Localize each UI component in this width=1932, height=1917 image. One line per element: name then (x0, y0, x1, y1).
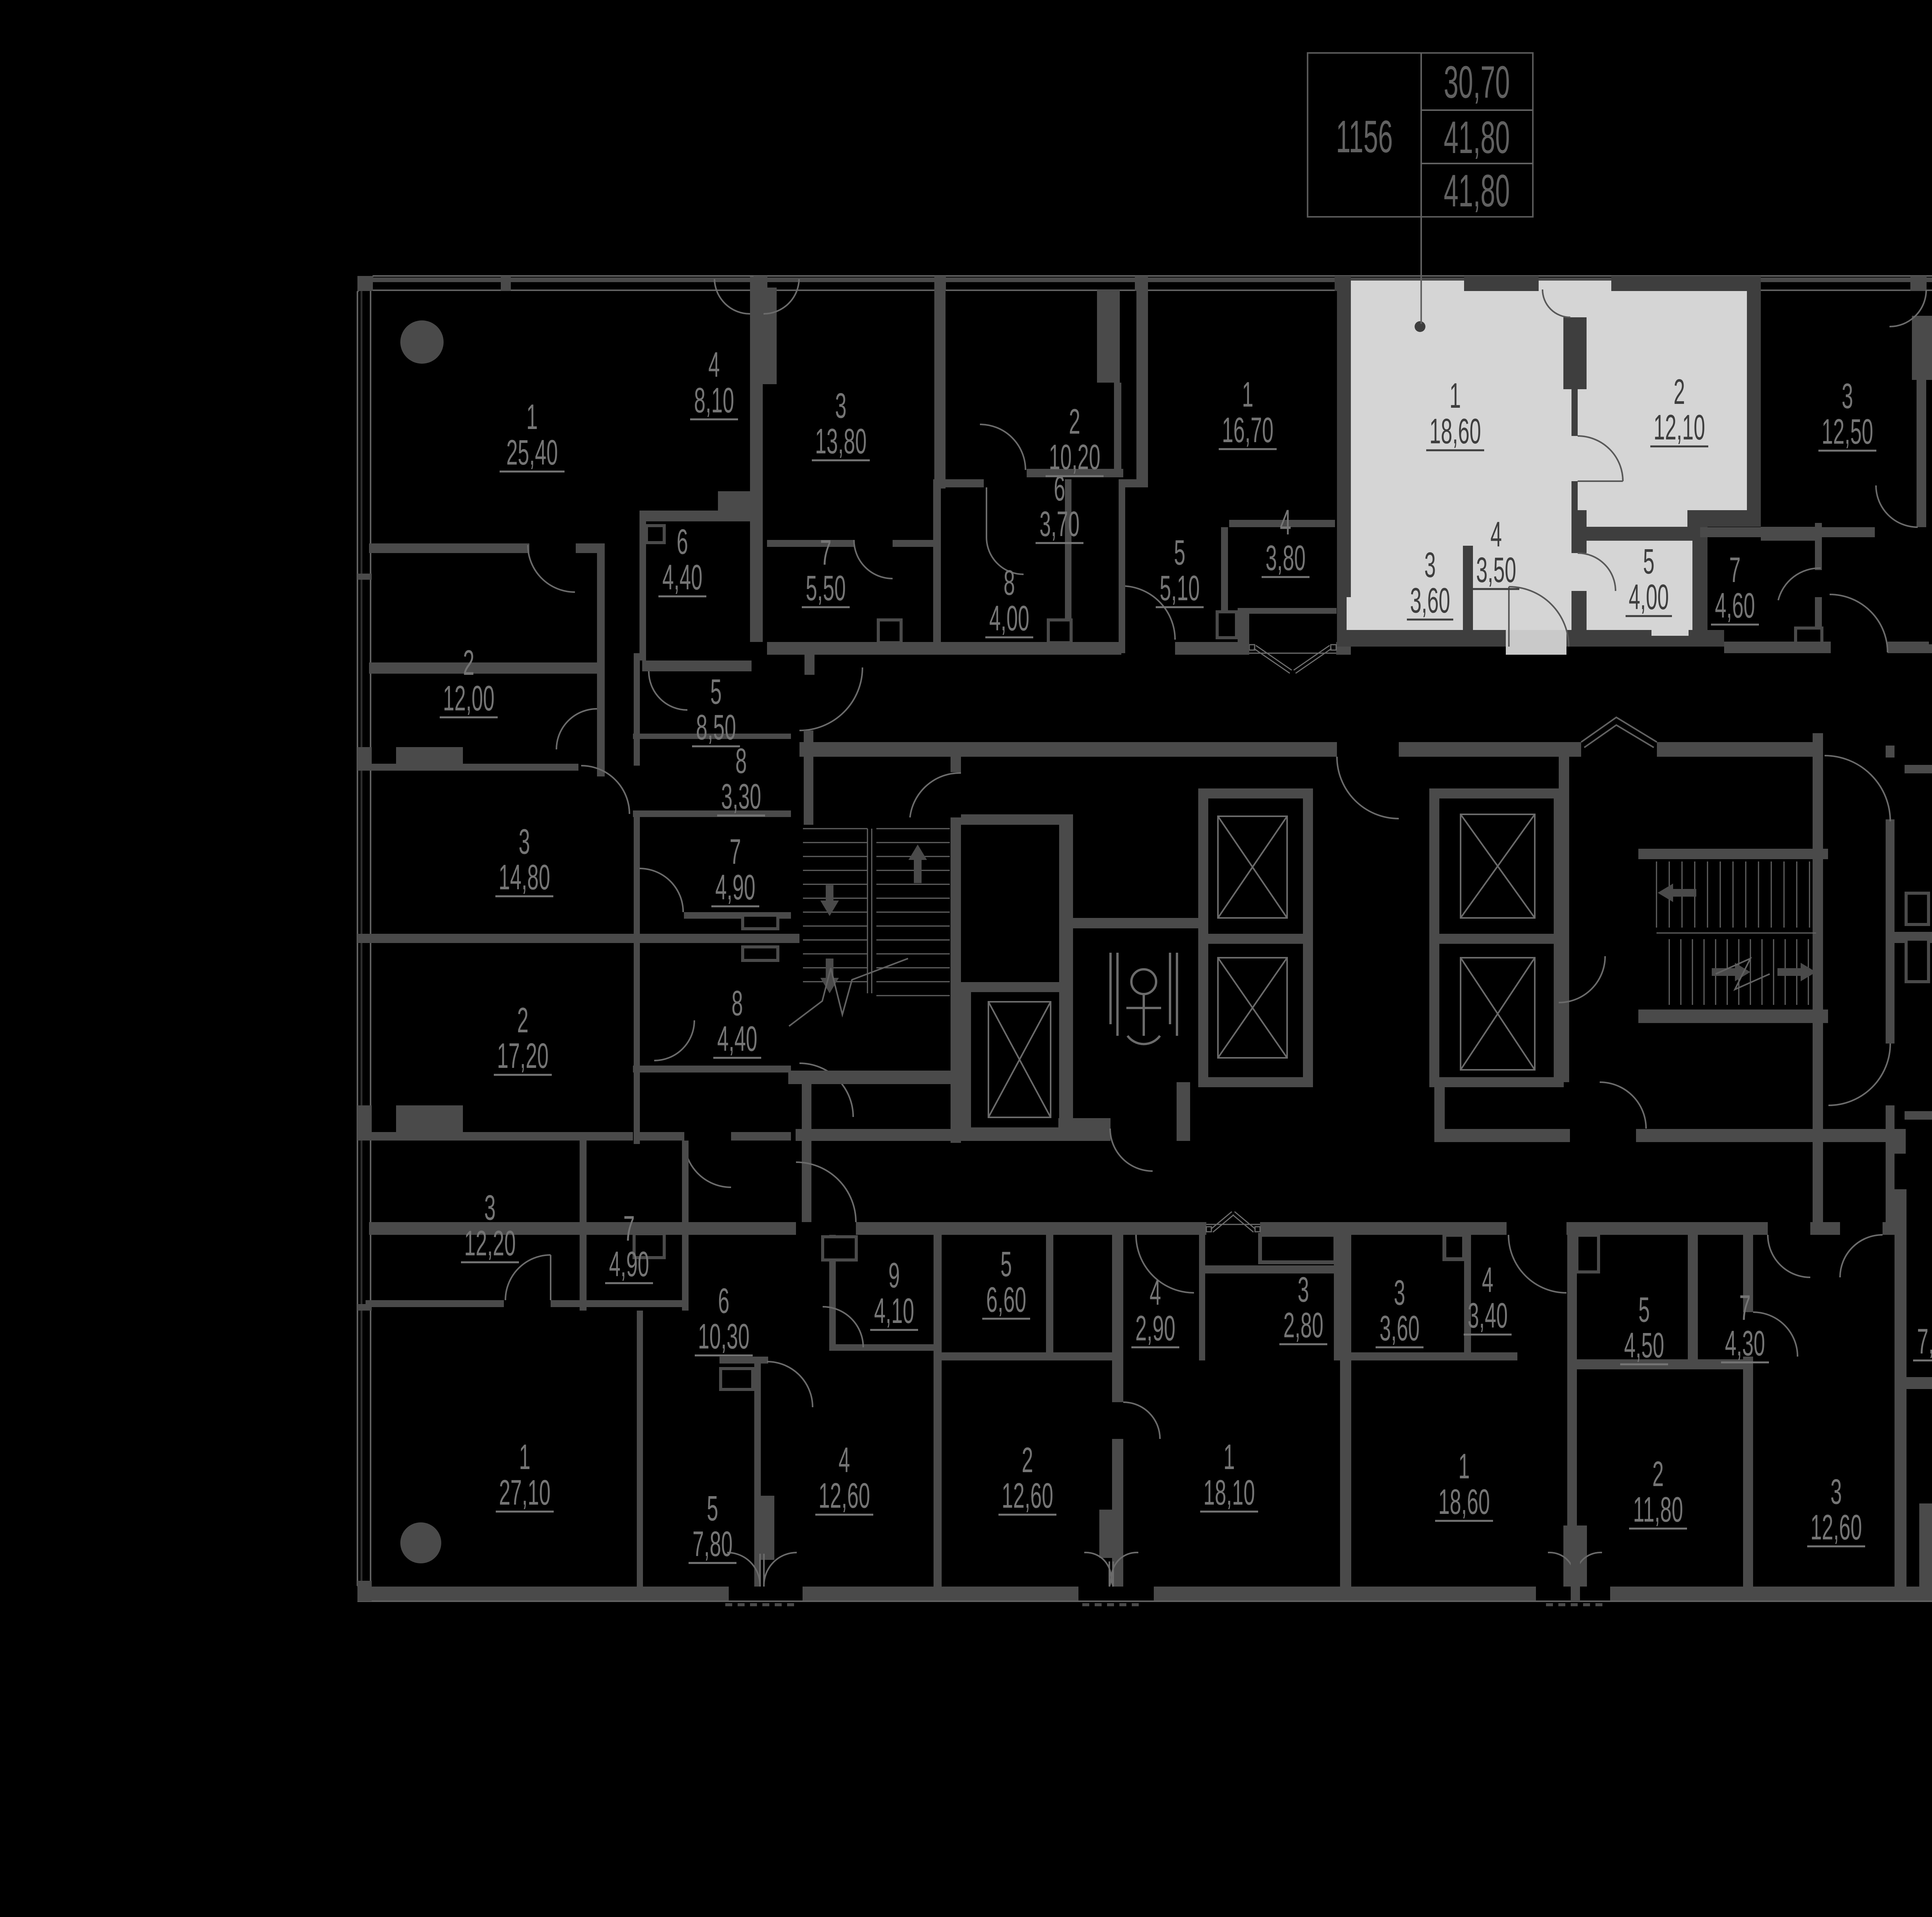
svg-text:3,50: 3,50 (1476, 550, 1516, 590)
svg-text:16,70: 16,70 (1222, 410, 1274, 450)
svg-text:1: 1 (1242, 375, 1253, 414)
svg-text:7: 7 (820, 533, 832, 572)
svg-text:12,60: 12,60 (818, 1476, 870, 1515)
svg-text:7: 7 (623, 1209, 635, 1248)
svg-text:4: 4 (1490, 514, 1502, 554)
svg-text:3: 3 (1830, 1472, 1842, 1512)
svg-text:2,80: 2,80 (1283, 1305, 1323, 1345)
svg-text:12,50: 12,50 (1821, 412, 1873, 451)
svg-text:4,10: 4,10 (874, 1291, 914, 1331)
svg-text:3: 3 (484, 1188, 496, 1227)
svg-text:12,60: 12,60 (1002, 1476, 1053, 1515)
svg-text:2: 2 (1652, 1454, 1664, 1494)
svg-text:3,80: 3,80 (1265, 538, 1306, 578)
svg-text:6,60: 6,60 (986, 1280, 1026, 1319)
svg-text:2: 2 (1673, 372, 1685, 412)
svg-text:2: 2 (463, 643, 474, 683)
svg-text:41,80: 41,80 (1444, 112, 1510, 163)
svg-text:5: 5 (1000, 1244, 1012, 1284)
svg-text:18,60: 18,60 (1429, 411, 1481, 451)
svg-text:3: 3 (1298, 1270, 1309, 1309)
svg-text:5: 5 (710, 672, 722, 712)
svg-text:5: 5 (707, 1488, 718, 1528)
svg-text:4,00: 4,00 (989, 598, 1029, 638)
svg-text:1: 1 (526, 397, 538, 437)
svg-text:12,00: 12,00 (443, 678, 495, 718)
svg-text:1: 1 (519, 1437, 531, 1477)
svg-text:4,30: 4,30 (1725, 1323, 1765, 1363)
svg-text:4,50: 4,50 (1624, 1325, 1664, 1365)
svg-text:11,80: 11,80 (1633, 1490, 1683, 1529)
svg-text:4: 4 (1280, 502, 1291, 542)
svg-text:8,50: 8,50 (696, 707, 736, 747)
svg-text:30,70: 30,70 (1444, 57, 1510, 108)
svg-text:18,60: 18,60 (1438, 1482, 1490, 1522)
svg-text:3,40: 3,40 (1468, 1296, 1508, 1335)
svg-text:12,10: 12,10 (1653, 407, 1705, 447)
svg-text:4: 4 (1150, 1273, 1161, 1313)
svg-text:1: 1 (1449, 376, 1461, 415)
svg-text:10,30: 10,30 (698, 1316, 750, 1356)
svg-text:5: 5 (1174, 533, 1185, 572)
svg-text:4,40: 4,40 (717, 1019, 757, 1059)
svg-text:5: 5 (1638, 1290, 1650, 1330)
svg-text:9: 9 (888, 1255, 900, 1295)
svg-text:4,40: 4,40 (662, 557, 702, 597)
svg-text:3: 3 (1842, 376, 1853, 416)
svg-text:41,80: 41,80 (1444, 166, 1510, 216)
svg-text:7,80: 7,80 (692, 1524, 733, 1564)
svg-text:17,20: 17,20 (497, 1036, 549, 1076)
svg-text:5,10: 5,10 (1160, 568, 1200, 608)
svg-text:4,90: 4,90 (715, 867, 755, 907)
svg-text:3,60: 3,60 (1379, 1308, 1420, 1348)
svg-text:6: 6 (677, 522, 688, 562)
svg-text:3,70: 3,70 (1039, 504, 1080, 544)
svg-text:3: 3 (519, 822, 530, 861)
svg-text:14,80: 14,80 (498, 857, 550, 897)
svg-text:27,10: 27,10 (499, 1473, 551, 1512)
svg-text:2: 2 (1069, 402, 1080, 441)
svg-text:25,40: 25,40 (506, 432, 558, 472)
svg-text:3: 3 (1424, 545, 1436, 585)
svg-text:18,10: 18,10 (1203, 1473, 1255, 1512)
svg-text:4: 4 (708, 345, 720, 385)
svg-text:8: 8 (1003, 563, 1015, 603)
svg-text:3: 3 (835, 386, 847, 426)
svg-text:3,60: 3,60 (1410, 581, 1450, 620)
svg-text:4: 4 (838, 1440, 850, 1480)
svg-text:4,90: 4,90 (609, 1244, 649, 1284)
svg-text:8: 8 (731, 983, 743, 1023)
svg-text:4,60: 4,60 (1715, 586, 1755, 625)
svg-text:3,30: 3,30 (721, 776, 761, 816)
svg-text:5: 5 (1643, 541, 1655, 581)
svg-text:13,80: 13,80 (815, 421, 867, 461)
svg-text:8,10: 8,10 (694, 380, 734, 420)
svg-text:1: 1 (1223, 1437, 1235, 1477)
svg-text:7,50: 7,50 (1917, 1321, 1932, 1361)
svg-text:8: 8 (735, 741, 747, 781)
svg-text:12,20: 12,20 (464, 1223, 516, 1263)
svg-text:6: 6 (1054, 468, 1065, 508)
svg-text:7: 7 (730, 832, 741, 872)
svg-text:4,00: 4,00 (1629, 577, 1669, 617)
svg-text:1156: 1156 (1336, 112, 1393, 162)
svg-text:5,50: 5,50 (806, 568, 846, 608)
svg-text:12,60: 12,60 (1810, 1507, 1862, 1547)
svg-text:4: 4 (1482, 1260, 1493, 1300)
svg-text:2: 2 (1022, 1440, 1033, 1480)
svg-text:7: 7 (1739, 1288, 1751, 1328)
svg-text:1: 1 (1458, 1446, 1470, 1486)
svg-text:2,90: 2,90 (1135, 1308, 1175, 1348)
svg-text:3: 3 (1394, 1273, 1405, 1313)
svg-text:6: 6 (718, 1281, 730, 1321)
svg-text:7: 7 (1729, 550, 1741, 590)
svg-text:2: 2 (517, 1000, 529, 1040)
